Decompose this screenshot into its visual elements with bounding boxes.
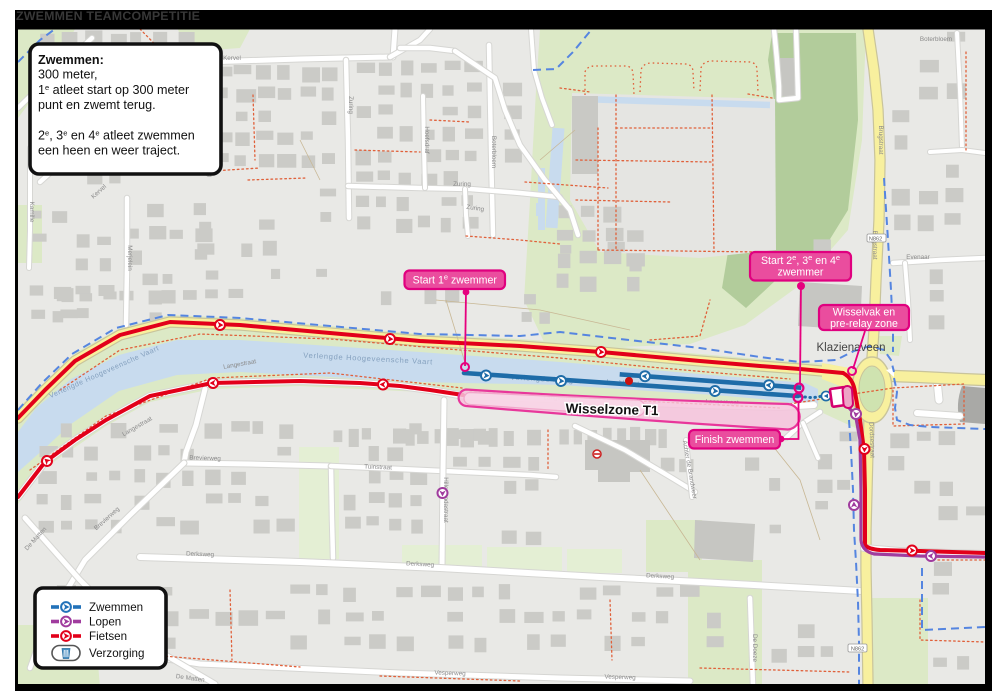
svg-text:Kervel: Kervel [223, 55, 241, 62]
svg-text:een heen en weer traject.: een heen en weer traject. [38, 144, 180, 158]
svg-text:Kamille: Kamille [28, 202, 35, 223]
svg-text:Evenaar: Evenaar [906, 254, 929, 261]
svg-text:Klazienaveen: Klazienaveen [816, 342, 885, 354]
svg-text:Zuring: Zuring [453, 181, 471, 188]
svg-text:Verzorging: Verzorging [89, 647, 144, 660]
svg-text:Start 1e​ zwemmer: Start 1e​ zwemmer [413, 272, 498, 286]
svg-text:ZWEMMEN TEAMCOMPETITIE: ZWEMMEN TEAMCOMPETITIE [16, 9, 200, 23]
svg-text:1e​ atleet start op 300 meter: 1e​ atleet start op 300 meter [38, 83, 189, 97]
svg-text:Hoefsdraf: Hoefsdraf [423, 126, 430, 154]
svg-text:Boterbloem: Boterbloem [490, 136, 497, 168]
svg-text:Derksweg: Derksweg [646, 572, 675, 580]
svg-text:Finish zwemmen: Finish zwemmen [695, 434, 775, 446]
svg-text:Derksweg: Derksweg [186, 551, 215, 559]
svg-text:N862: N862 [851, 646, 864, 652]
svg-text:pre-relay zone: pre-relay zone [830, 318, 898, 330]
svg-text:Brugstraat: Brugstraat [877, 125, 884, 154]
svg-text:Lopen: Lopen [89, 616, 121, 629]
svg-text:zwemmer: zwemmer [778, 267, 824, 279]
svg-text:Wisselvak en: Wisselvak en [833, 306, 896, 318]
svg-text:Start 2e​, 3e​ en 4e​: Start 2e​, 3e​ en 4e​ [761, 253, 840, 267]
svg-text:punt en zwemt terug.: punt en zwemt terug. [38, 98, 156, 112]
svg-text:2e​, 3e​ en 4e​ atleet zwemmen: 2e​, 3e​ en 4e​ atleet zwemmen [38, 129, 195, 143]
svg-text:Fietsen: Fietsen [89, 630, 127, 643]
svg-text:300 meter,: 300 meter, [38, 68, 98, 82]
svg-text:Boterbloem: Boterbloem [920, 36, 952, 43]
svg-text:Zuring: Zuring [347, 96, 354, 114]
svg-text:De Doeze: De Doeze [751, 634, 758, 662]
svg-text:Hillegondastraat: Hillegondastraat [442, 477, 449, 523]
svg-text:Zwemmen:: Zwemmen: [38, 53, 104, 67]
svg-text:Brevierweg: Brevierweg [189, 454, 221, 462]
svg-text:N862: N862 [869, 236, 882, 242]
svg-text:Vesperweg: Vesperweg [604, 673, 636, 681]
svg-text:Wisselzone T1: Wisselzone T1 [565, 401, 659, 418]
svg-text:Tuinstraat: Tuinstraat [364, 464, 392, 472]
svg-text:Merjelein: Merjelein [126, 245, 133, 271]
svg-text:Zwemmen: Zwemmen [89, 601, 143, 614]
svg-text:Derksweg: Derksweg [406, 560, 435, 568]
svg-text:Vesperweg: Vesperweg [434, 669, 466, 677]
